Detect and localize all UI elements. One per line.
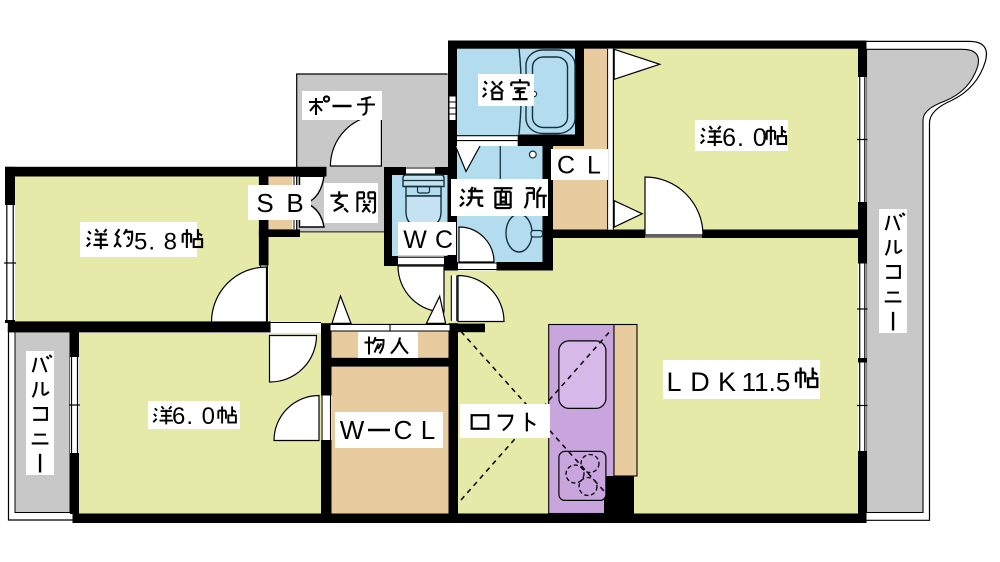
svg-text:5. 8: 5. 8 (134, 229, 178, 256)
svg-text:D: D (690, 367, 710, 397)
svg-text:C: C (557, 152, 575, 180)
svg-text:S: S (256, 188, 273, 218)
svg-text:C: C (394, 415, 413, 445)
svg-text:B: B (286, 188, 303, 218)
svg-text:W: W (340, 415, 365, 445)
svg-text:11.5: 11.5 (742, 367, 791, 397)
svg-text:K: K (718, 367, 736, 397)
svg-text:6. 0: 6. 0 (172, 403, 216, 430)
svg-text:6. 0: 6. 0 (722, 124, 768, 152)
svg-text:C: C (435, 226, 453, 254)
svg-text:L: L (587, 152, 601, 180)
svg-text:W: W (403, 226, 427, 254)
svg-text:L: L (666, 367, 681, 397)
svg-text:L: L (421, 415, 435, 445)
